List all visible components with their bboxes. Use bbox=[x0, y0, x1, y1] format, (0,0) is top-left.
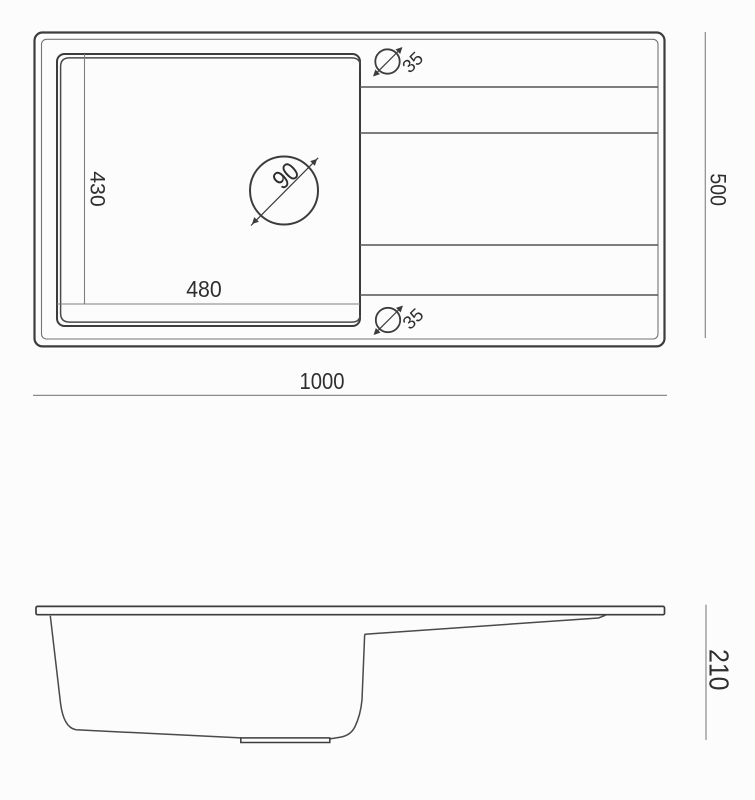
svg-text:210: 210 bbox=[704, 649, 735, 691]
svg-text:500: 500 bbox=[706, 173, 731, 206]
svg-text:480: 480 bbox=[186, 276, 222, 302]
svg-text:430: 430 bbox=[85, 171, 109, 207]
svg-text:1000: 1000 bbox=[300, 368, 345, 394]
svg-text:35: 35 bbox=[398, 47, 427, 76]
svg-text:90: 90 bbox=[266, 156, 305, 195]
svg-text:35: 35 bbox=[398, 304, 427, 333]
